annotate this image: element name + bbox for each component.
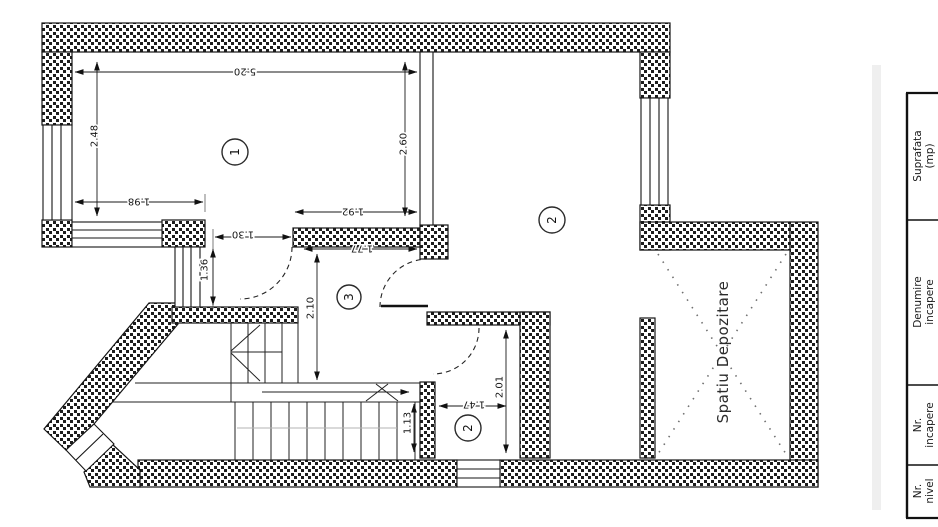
room-number: 1 <box>228 148 242 156</box>
dimension-label: 2.48 <box>90 125 101 147</box>
dimension-label: 1.36 <box>200 259 211 281</box>
wall-storage-right <box>790 222 818 487</box>
table-header-nr-nivel: Nr. <box>912 484 924 499</box>
window-bottom <box>457 460 500 487</box>
wall-room2-right-upper <box>640 52 670 98</box>
room-number: 2 <box>545 216 559 224</box>
table-header-denumire: Denumire <box>912 276 924 328</box>
dimension-label: 1.13 <box>403 412 414 434</box>
wall-storage-top <box>640 222 790 250</box>
table-header-nr-incapere: Nr. <box>912 418 924 433</box>
table-header-suprafata-unit: (mp) <box>924 143 936 168</box>
door-arc-room1-room3 <box>240 247 292 299</box>
dimension-label: 2.10 <box>306 297 317 319</box>
wall-left-upper <box>42 52 72 125</box>
windows-and-partitions <box>43 52 668 487</box>
stair-winder-diagonal <box>231 353 260 381</box>
room-number: 3 <box>342 293 356 301</box>
dimension-label: 1.47 <box>463 399 485 410</box>
door-arc-room3-room2 <box>380 259 428 307</box>
dimension-label: 1.30 <box>232 229 254 240</box>
floor-plan-page: Spatiu Depozitare 5.20 2.48 2.60 1.98 1.… <box>0 0 938 527</box>
room-schedule-table: Suprafata (mp) Denumire incapere Nr. inc… <box>906 93 938 518</box>
room-number: 2 <box>461 424 475 432</box>
table-header-nr-nivel-2: nivel <box>924 478 936 503</box>
table-header-suprafata: Suprafata <box>912 130 924 181</box>
wall-bottom-left-band <box>138 460 457 487</box>
window-room1-bottom <box>72 222 162 247</box>
table-header-nr-incapere-2: incapere <box>924 402 936 447</box>
dimension-label: 2.60 <box>399 133 410 155</box>
window-left <box>43 125 72 220</box>
partition-room1-room2 <box>420 52 433 225</box>
dimension-label: 1.77 <box>351 243 373 254</box>
wall-storage-partition <box>640 318 655 458</box>
room-numbers: 1 2 3 2 <box>222 139 565 441</box>
stair-winder-diagonal <box>231 325 260 351</box>
wall-top <box>42 23 670 52</box>
dimension-label: 2.01 <box>495 376 506 398</box>
wall-room2-corner-block <box>420 225 448 259</box>
floor-plan-drawing: Spatiu Depozitare 5.20 2.48 2.60 1.98 1.… <box>0 0 938 527</box>
storage-area: Spatiu Depozitare <box>658 254 786 454</box>
storage-area-label: Spatiu Depozitare <box>714 281 732 424</box>
wall-left-corner <box>42 220 72 247</box>
partition-stub <box>175 247 200 307</box>
scan-artifact <box>872 65 881 510</box>
table-header-denumire-2: incapere <box>924 279 936 324</box>
dimension-label: 1.92 <box>342 206 364 217</box>
wall-bottom-right-band <box>500 460 818 487</box>
dimension-label: 1.98 <box>128 196 150 207</box>
dimension-label: 5.20 <box>234 66 256 77</box>
wall-diagonal <box>44 303 178 450</box>
door-arc-wc <box>433 328 479 374</box>
wall-stair-top <box>172 307 298 323</box>
wall-room1-bottom-block <box>162 220 205 247</box>
wall-wc-right <box>520 312 550 458</box>
wall-wc-left <box>420 382 435 458</box>
window-room2-right <box>641 98 668 205</box>
